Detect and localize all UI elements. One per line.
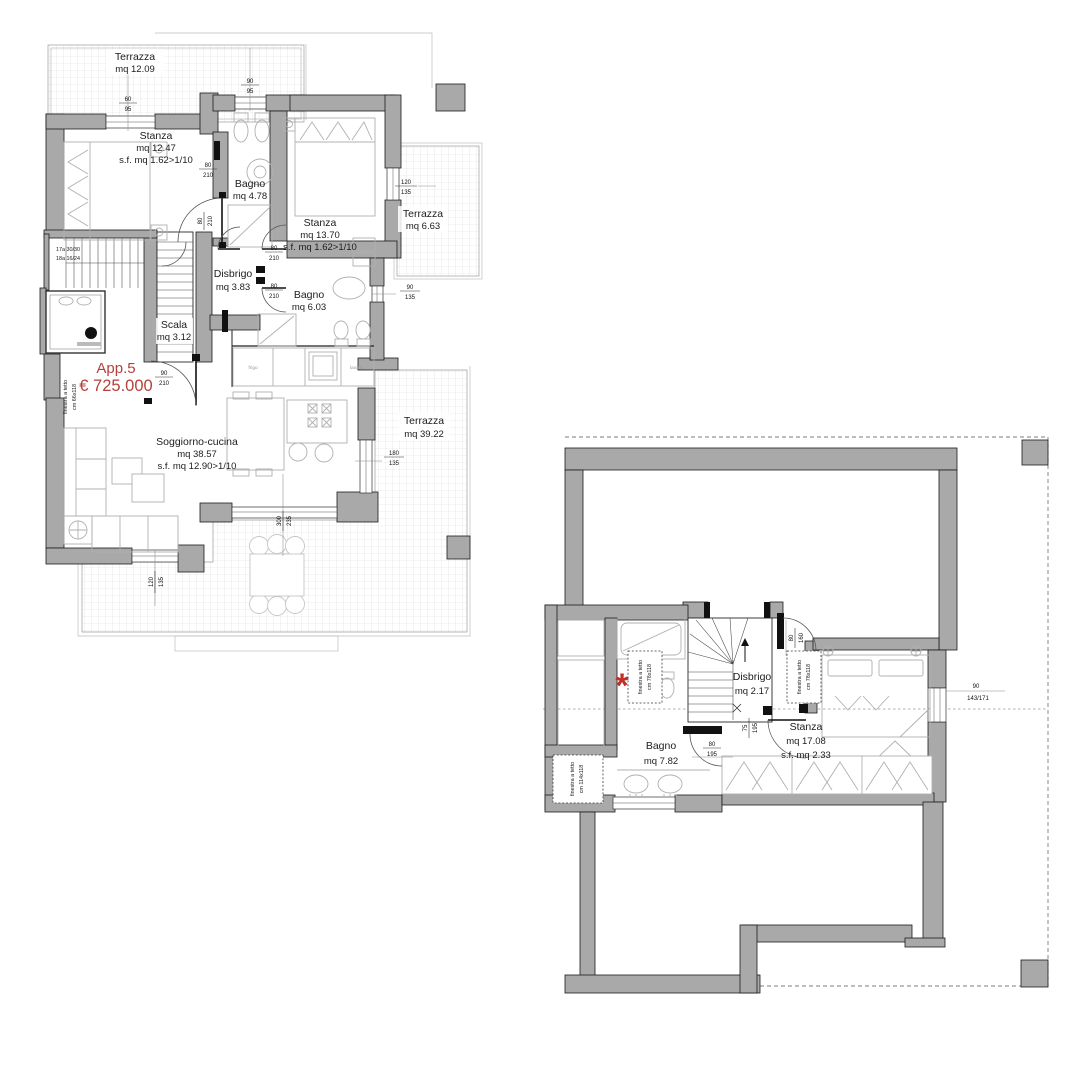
svg-text:210: 210 — [159, 381, 170, 387]
svg-text:95: 95 — [247, 89, 254, 95]
svg-text:180: 180 — [389, 451, 400, 457]
label-attic-stanza-name: Stanza — [790, 721, 823, 733]
svg-text:143/171: 143/171 — [967, 696, 989, 702]
label-soggiorno-name: Soggiorno-cucina — [156, 436, 238, 448]
label-bagno-mid-area: mq 6.03 — [292, 302, 326, 313]
label-bagno-top-area: mq 4.78 — [233, 191, 267, 202]
skylight-corner-box — [553, 755, 603, 803]
label-stanza-right-name: Stanza — [304, 217, 337, 229]
svg-text:90: 90 — [407, 285, 414, 291]
label-stanza-right-area: mq 13.70 — [300, 230, 340, 241]
svg-text:95: 95 — [125, 107, 132, 113]
svg-text:210: 210 — [208, 215, 214, 226]
attic-stairs — [688, 602, 772, 722]
svg-text:210: 210 — [269, 294, 280, 300]
svg-text:195: 195 — [707, 752, 718, 758]
svg-text:135: 135 — [401, 190, 412, 196]
label-terrazza-top-area: mq 12.09 — [115, 64, 155, 75]
dim-80-160: 80160 — [789, 628, 805, 648]
label-stanza-left-name: Stanza — [140, 130, 173, 142]
label-terrazza-main-name: Terrazza — [404, 415, 444, 427]
bedroom-window — [928, 688, 946, 722]
label-disbrigo-area: mq 3.83 — [216, 282, 250, 293]
attic-floor-plan: finestra a tetto cm 78x118 finestra a te… — [543, 437, 1048, 993]
sink — [624, 775, 648, 793]
label-attic-disbrigo-name: Disbrigo — [733, 671, 772, 683]
kitchen-dishwasher-label: lavast. — [350, 365, 364, 371]
svg-text:finestra a tetto: finestra a tetto — [570, 762, 576, 796]
svg-text:80: 80 — [271, 246, 278, 252]
svg-text:90: 90 — [161, 371, 168, 377]
floorplan-drawing: 6095 9095 80210 80210 80210 80210 90135 … — [0, 0, 1080, 1080]
svg-text:80: 80 — [198, 217, 204, 224]
apartment-number: App.5 — [96, 360, 135, 377]
shaft — [222, 310, 228, 332]
svg-text:210: 210 — [269, 256, 280, 262]
svg-text:120: 120 — [149, 576, 155, 587]
dim-80-195: 80195 — [703, 742, 721, 758]
elevator-small-text — [77, 342, 101, 346]
pillar-block — [1022, 440, 1048, 465]
svg-text:finestra a tetto: finestra a tetto — [638, 660, 644, 694]
sink — [658, 775, 682, 793]
pillar-block — [447, 536, 470, 559]
dim-80-210-b: 80210 — [198, 212, 214, 230]
svg-text:cm 114x118: cm 114x118 — [579, 765, 585, 794]
skylight-bath-box — [628, 651, 662, 703]
label-attic-stanza-area: mq 17.08 — [786, 736, 826, 747]
label-terrazza-main-area: mq 39.22 — [404, 429, 444, 440]
svg-text:75: 75 — [743, 724, 749, 731]
floorplan-page: 6095 9095 80210 80210 80210 80210 90135 … — [0, 0, 1080, 1080]
svg-text:195: 195 — [753, 722, 759, 733]
svg-text:235: 235 — [287, 515, 293, 526]
svg-text:135: 135 — [389, 461, 400, 467]
label-scala-area: mq 3.12 — [157, 332, 191, 343]
stair-note-1: 17a 30/30 — [56, 247, 80, 253]
svg-text:finestra a tetto: finestra a tetto — [797, 660, 803, 694]
stair-note-2: 18a 16/24 — [56, 256, 80, 262]
svg-text:90: 90 — [973, 684, 980, 690]
svg-text:80: 80 — [271, 284, 278, 290]
label-attic-bagno-area: mq 7.82 — [644, 756, 678, 767]
label-terrazza-right-name: Terrazza — [403, 208, 443, 220]
pillar-block — [436, 84, 465, 111]
svg-text:80: 80 — [205, 163, 212, 169]
elevator-icon — [85, 327, 97, 339]
dim-80-210-d: 80210 — [265, 284, 283, 300]
label-stanza-left-surface: s.f. mq 1.62>1/10 — [119, 155, 193, 166]
label-bagno-mid-name: Bagno — [294, 289, 325, 301]
svg-text:210: 210 — [203, 173, 214, 179]
svg-text:160: 160 — [799, 632, 805, 643]
svg-text:300: 300 — [277, 515, 283, 526]
svg-text:135: 135 — [405, 295, 416, 301]
label-soggiorno-surface: s.f. mq 12.90>1/10 — [158, 461, 237, 472]
svg-text:120: 120 — [401, 180, 412, 186]
label-stanza-left-area: mq 12.47 — [136, 143, 176, 154]
red-asterisk-marker: * — [615, 667, 629, 705]
apartment-price: € 725.000 — [79, 377, 152, 395]
label-terrazza-right-area: mq 6.63 — [406, 221, 440, 232]
upper-floor-plan: 6095 9095 80210 80210 80210 80210 90135 … — [40, 33, 482, 651]
door-leaf — [690, 726, 722, 734]
svg-text:80: 80 — [709, 742, 716, 748]
svg-text:finestra a tetto: finestra a tetto — [63, 380, 69, 414]
label-attic-bagno-name: Bagno — [646, 740, 677, 752]
skylight-bedroom-box — [787, 651, 821, 703]
dim-90-143-171: 90143/171 — [967, 684, 989, 702]
label-scala-name: Scala — [161, 319, 187, 331]
kitchen-fridge-label: frigo — [248, 365, 258, 371]
svg-text:80: 80 — [789, 634, 795, 641]
shaft — [214, 141, 220, 160]
dim-90-210: 90210 — [155, 371, 173, 387]
svg-text:cm 78x118: cm 78x118 — [806, 664, 812, 690]
svg-text:135: 135 — [159, 576, 165, 587]
dim-90-135: 90135 — [400, 285, 420, 301]
svg-text:cm 78x118: cm 78x118 — [647, 664, 653, 690]
skylight-label-66x118: finestra a tetto cm 66x118 — [63, 380, 78, 414]
label-attic-disbrigo-area: mq 2.17 — [735, 686, 769, 697]
label-soggiorno-area: mq 38.57 — [177, 449, 217, 460]
bed — [822, 655, 930, 737]
label-terrazza-top-name: Terrazza — [115, 51, 155, 63]
label-bagno-top-name: Bagno — [235, 178, 266, 190]
pillar-block — [1021, 960, 1048, 987]
svg-text:60: 60 — [125, 97, 132, 103]
svg-text:cm 66x118: cm 66x118 — [72, 384, 78, 410]
label-stanza-right-surface: s.f. mq 1.62>1/10 — [283, 242, 357, 253]
attic-boundary — [543, 437, 1048, 987]
label-disbrigo-name: Disbrigo — [214, 268, 253, 280]
door-leaf — [777, 613, 784, 649]
label-attic-stanza-surface: s.f. mq 2.33 — [781, 750, 831, 761]
svg-text:90: 90 — [247, 79, 254, 85]
